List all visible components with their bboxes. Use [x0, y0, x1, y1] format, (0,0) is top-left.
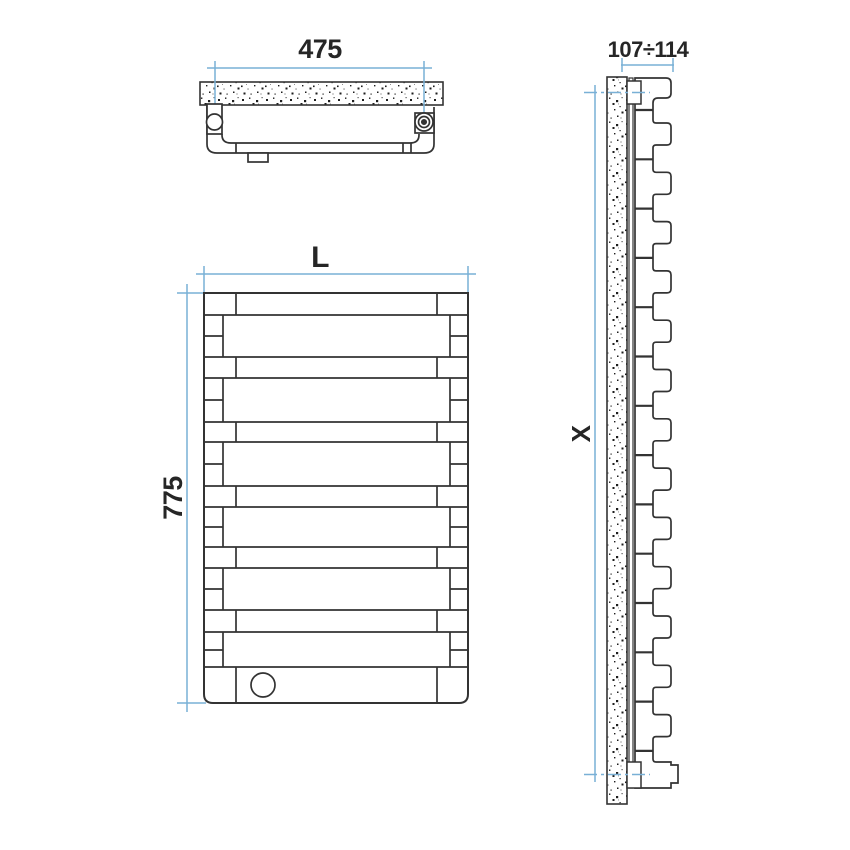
wall-section-side-view — [607, 77, 627, 804]
technical-drawing-page: 475 L 775 — [0, 0, 850, 850]
air-vent-valve-dot — [422, 120, 426, 124]
radiator-technical-drawing: 475 L 775 — [0, 0, 850, 850]
front-view: L 775 — [158, 241, 476, 712]
bar-end-joints — [236, 143, 411, 153]
top-width-dimension-label: 475 — [298, 34, 342, 64]
radiator-top-profile — [207, 104, 435, 162]
front-width-dimension-label: L — [311, 241, 329, 274]
side-height-dimension-label: X — [566, 424, 596, 442]
back-panel-strip — [629, 78, 633, 788]
top-view: 475 — [200, 34, 443, 162]
wall-section-top-view — [200, 82, 443, 105]
radiator-front-body — [204, 293, 468, 703]
inner-tube-outline — [222, 134, 419, 143]
left-collector-cap — [207, 114, 223, 130]
depth-dimension-label: 107÷114 — [608, 37, 690, 62]
front-height-dimension-label: 775 — [158, 476, 188, 520]
side-body-outline — [635, 78, 678, 788]
extension-ticks — [204, 266, 468, 293]
sensor-pocket-tab — [248, 153, 268, 162]
radiator-side-profile — [627, 78, 678, 788]
side-view: 107÷114 X — [566, 37, 690, 804]
front-frame — [204, 293, 468, 703]
dim-front-width — [196, 266, 476, 293]
outer-tube-outline — [207, 105, 434, 153]
thermostat-knob — [251, 673, 275, 697]
